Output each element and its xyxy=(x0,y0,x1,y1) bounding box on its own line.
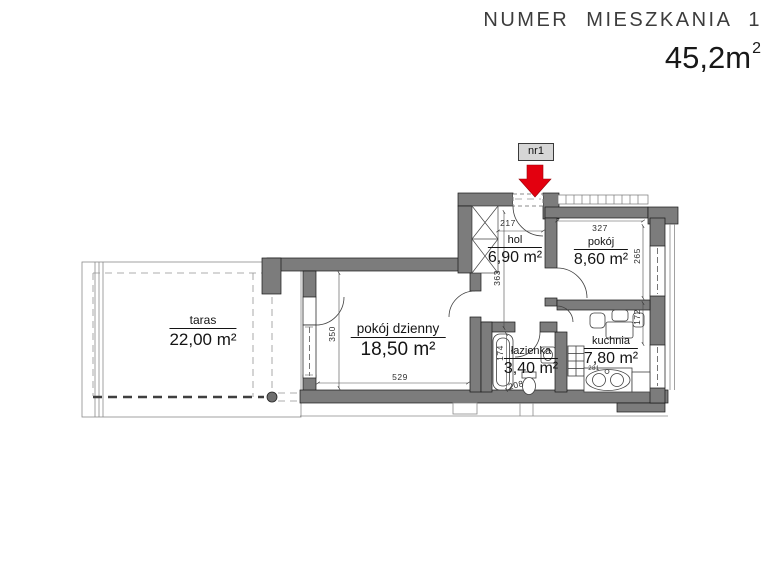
dim-living-depth: 350 xyxy=(327,326,337,342)
room-label-kuchnia: kuchnia 7,80 m² xyxy=(584,335,638,368)
dim-hol-depth: 363 xyxy=(492,270,502,286)
dim-living-width: 529 xyxy=(392,372,408,382)
room-name-pokoj: pokój xyxy=(574,236,628,250)
room-label-hol: hol 6,90 m² xyxy=(488,234,542,267)
entrance-doorway xyxy=(513,194,543,236)
floorplan-page: NUMER MIESZKANIA 1 45,2m2 xyxy=(0,0,772,580)
room-name-kuchnia: kuchnia xyxy=(584,335,638,349)
room-area-pokoj-dzienny: 18,50 m² xyxy=(351,338,446,361)
room-area-taras: 22,00 m² xyxy=(169,329,236,350)
floorplan-drawing xyxy=(0,0,772,580)
room-area-lazienka: 3,40 m² xyxy=(504,359,558,378)
dim-pokoj-depth: 265 xyxy=(632,248,642,264)
room-label-pokoj: pokój 8,60 m² xyxy=(574,236,628,269)
dim-pokoj-width: 327 xyxy=(592,223,608,233)
room-name-taras: taras xyxy=(169,313,236,329)
room-name-pokoj-dzienny: pokój dzienny xyxy=(351,321,446,338)
entrance-arrow-icon xyxy=(519,165,551,197)
kuchnia-window xyxy=(650,345,665,388)
railing-hatch xyxy=(558,195,648,204)
dim-lazienka-depth: 174 xyxy=(495,345,505,361)
stove-icon xyxy=(568,346,584,376)
terrace-column xyxy=(267,392,277,402)
room-label-taras: taras 22,00 m² xyxy=(169,313,236,350)
dim-hol-width: 217 xyxy=(500,218,516,228)
room-name-lazienka: łazienka xyxy=(504,345,558,359)
unit-marker-badge: nr1 xyxy=(518,143,554,161)
room-name-hol: hol xyxy=(488,234,542,248)
pokoj-window xyxy=(650,246,665,296)
room-label-lazienka: łazienka 3,40 m² xyxy=(504,345,558,378)
dim-kuchnia-window: 172 xyxy=(632,309,642,325)
dim-sink-counter: 281 xyxy=(588,366,600,372)
room-area-hol: 6,90 m² xyxy=(488,248,542,267)
room-area-pokoj: 8,60 m² xyxy=(574,250,628,269)
room-label-pokoj-dzienny: pokój dzienny 18,50 m² xyxy=(351,321,446,361)
balcony-door-window xyxy=(303,297,344,378)
